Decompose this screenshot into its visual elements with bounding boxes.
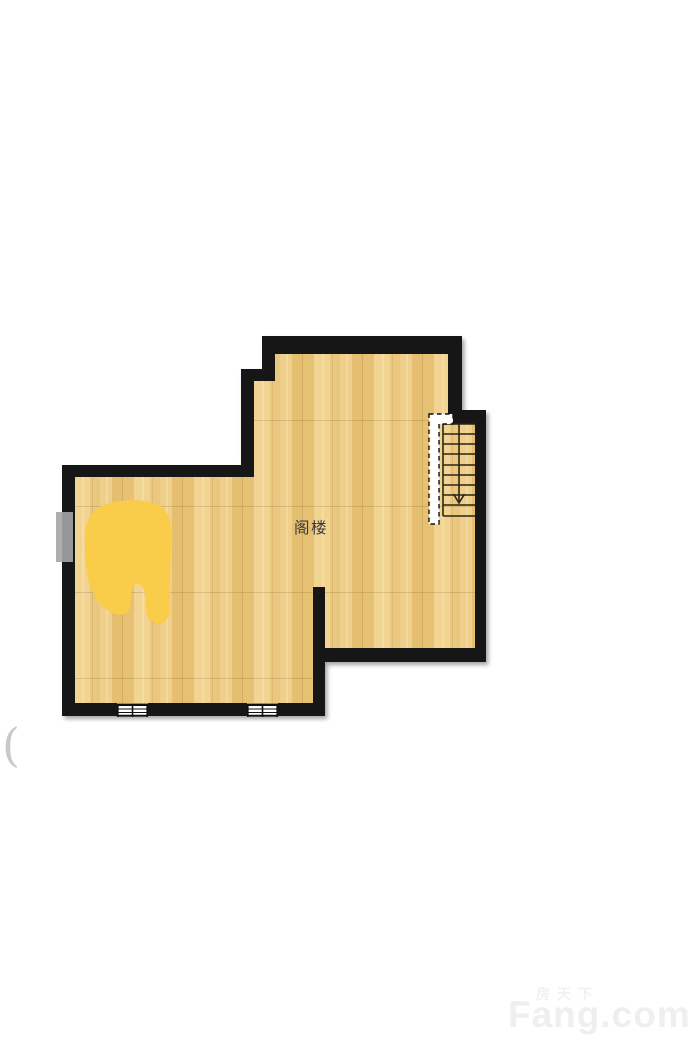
watermark-fang-logo: Fang.com <box>508 994 691 1036</box>
room-label: 阁楼 <box>294 519 328 537</box>
window <box>247 704 278 718</box>
left-edge-mark: ( <box>2 722 20 768</box>
window <box>117 704 148 718</box>
skylight-window <box>56 512 73 562</box>
floorplan-page: 阁楼 ( 房天下 Fang.com <box>0 0 693 1055</box>
watermark: 房天下 Fang.com <box>508 982 693 1042</box>
attic-floorplan: 阁楼 <box>0 0 693 1055</box>
